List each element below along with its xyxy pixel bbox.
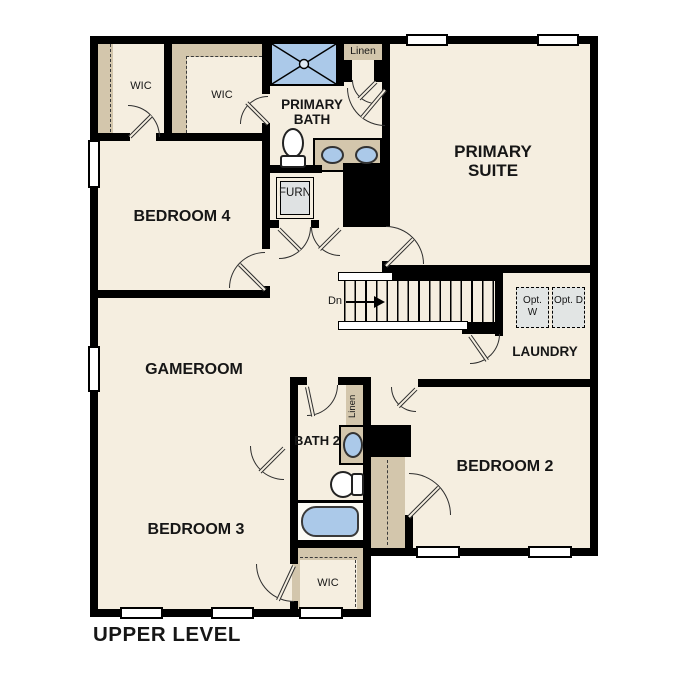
room-label-wic1: WIC xyxy=(116,80,166,93)
optional-dryer-box: Opt. D xyxy=(552,287,585,328)
room-label-linen1: Linen xyxy=(344,45,382,57)
toilet-icon-primary-tank xyxy=(280,155,306,168)
wall-stair-bottom xyxy=(462,322,503,334)
toilet-icon-bath2-tank xyxy=(351,473,364,496)
window-bedroom2-2 xyxy=(528,546,572,558)
wall-stair-top xyxy=(386,273,503,281)
room-label-furn: FURN xyxy=(274,187,316,200)
wall-suite-bottom xyxy=(382,265,598,273)
window-top-1 xyxy=(406,34,448,46)
bedroom2-closet xyxy=(371,457,405,548)
wall-bath2-top-b xyxy=(338,377,371,385)
chase-solid-block xyxy=(343,163,390,227)
floor-plan-upper-level: Opt. W Opt. D WIC WIC Linen PRIMARY BATH… xyxy=(0,0,687,687)
room-label-wic3: WIC xyxy=(302,577,354,590)
room-label-bedroom3: BEDROOM 3 xyxy=(122,521,270,539)
room-label-wic2: WIC xyxy=(197,89,247,102)
wall-wic2-bath-lower xyxy=(262,123,270,249)
room-label-primary-suite: PRIMARY SUITE xyxy=(428,142,558,180)
wall-linen1-stub-right xyxy=(374,60,382,82)
stairs-rail-top xyxy=(338,272,393,281)
stairs-dn-label: Dn xyxy=(318,295,342,308)
optional-washer-box: Opt. W xyxy=(516,287,549,328)
wall-shower-right xyxy=(337,42,344,86)
stairs-arrow-head xyxy=(374,296,385,308)
room-label-gameroom: GAMEROOM xyxy=(125,361,263,379)
wic3-dash-right xyxy=(355,560,356,607)
page-title: UPPER LEVEL xyxy=(93,624,333,647)
wic2-shelf-dash-h xyxy=(186,56,262,57)
room-label-bath2: BATH 2 xyxy=(294,434,340,449)
toilet-icon-primary-bowl xyxy=(282,128,304,158)
window-bottom-3 xyxy=(299,607,343,619)
wall-bedroom2-door-lower xyxy=(405,515,413,556)
optional-washer-label: Opt. W xyxy=(523,295,542,318)
window-bedroom2-1 xyxy=(416,546,460,558)
wall-linen1-stub-left xyxy=(344,60,352,82)
bedroom2-closet-rod-dash xyxy=(387,460,388,545)
vestibule-solid-stub xyxy=(371,425,411,457)
wic2-shelf-dash-v xyxy=(186,56,187,133)
wall-bedroom4-bottom xyxy=(98,290,270,298)
wall-wic3-right xyxy=(363,548,371,617)
window-bottom-1 xyxy=(120,607,163,619)
wall-outer-left xyxy=(90,36,98,617)
wall-bath2-top-a xyxy=(290,377,307,385)
optional-dryer-label: Opt. D xyxy=(554,295,583,306)
room-label-linen2: Linen xyxy=(348,388,362,424)
wall-furn-stub xyxy=(262,220,279,228)
window-left-1 xyxy=(88,140,100,188)
window-top-2 xyxy=(537,34,579,46)
shower-icon xyxy=(270,42,338,86)
stairs-arrow-line xyxy=(346,301,376,303)
sink-icon-primary-left xyxy=(321,146,344,164)
wall-wic3-top xyxy=(290,540,363,548)
wall-wic2-bath-upper xyxy=(262,42,270,94)
sink-icon-primary-right xyxy=(355,146,378,164)
wic3-dash-top xyxy=(300,557,357,558)
window-left-2 xyxy=(88,346,100,392)
wall-bath2-left-stub xyxy=(290,601,298,613)
room-label-bedroom2: BEDROOM 2 xyxy=(435,458,575,476)
wall-laundry-bedroom2 xyxy=(418,379,590,387)
wall-wic-bottom-b xyxy=(156,133,270,141)
stairs-rail-bottom xyxy=(338,321,468,330)
room-label-bedroom4: BEDROOM 4 xyxy=(108,208,256,226)
sink-icon-bath2 xyxy=(343,432,363,458)
window-bottom-2 xyxy=(211,607,254,619)
wall-outer-right xyxy=(590,36,598,556)
room-label-laundry: LAUNDRY xyxy=(502,344,588,359)
wall-bath2-right xyxy=(363,385,371,548)
room-label-primary-bath: PRIMARY BATH xyxy=(270,97,354,127)
wall-wic-bottom-a xyxy=(98,133,130,141)
bathtub-icon xyxy=(301,506,359,537)
wic1-shelf-dash xyxy=(110,44,111,132)
wic2-shelf-left xyxy=(172,42,187,133)
wall-bath2-left xyxy=(290,377,298,564)
